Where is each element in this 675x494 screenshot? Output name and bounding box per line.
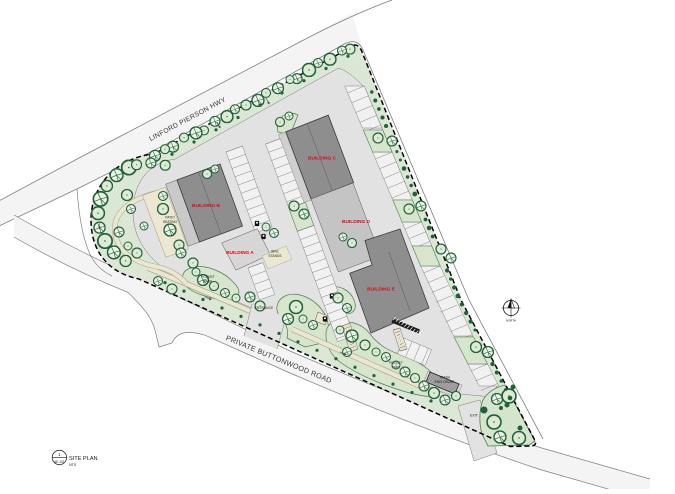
svg-text:SEATING: SEATING <box>163 220 178 224</box>
svg-text:ENTRANCE: ENTRANCE <box>255 306 274 310</box>
svg-text:BUILDING C: BUILDING C <box>308 156 337 162</box>
svg-text:AE-101: AE-101 <box>54 460 65 464</box>
svg-text:BIKE: BIKE <box>271 250 279 254</box>
svg-text:STANDS: STANDS <box>268 254 282 258</box>
svg-text:POCKET: POCKET <box>389 361 403 365</box>
svg-text:NTS: NTS <box>69 463 77 467</box>
svg-text:BUILDING D: BUILDING D <box>342 219 371 225</box>
svg-text:BUILDING A: BUILDING A <box>226 250 254 256</box>
svg-text:PARK: PARK <box>392 366 402 370</box>
svg-text:SITE PLAN: SITE PLAN <box>69 456 98 462</box>
svg-text:ENCLOSURE: ENCLOSURE <box>435 380 455 384</box>
svg-text:PARK: PARK <box>204 280 214 284</box>
svg-text:BUILDING B: BUILDING B <box>192 203 221 209</box>
svg-text:BUILDING E: BUILDING E <box>367 287 396 293</box>
svg-text:PATIO: PATIO <box>165 216 175 220</box>
svg-text:EXIT: EXIT <box>470 414 479 418</box>
svg-text:POCKET: POCKET <box>201 275 215 279</box>
svg-text:NORTH: NORTH <box>506 319 516 323</box>
